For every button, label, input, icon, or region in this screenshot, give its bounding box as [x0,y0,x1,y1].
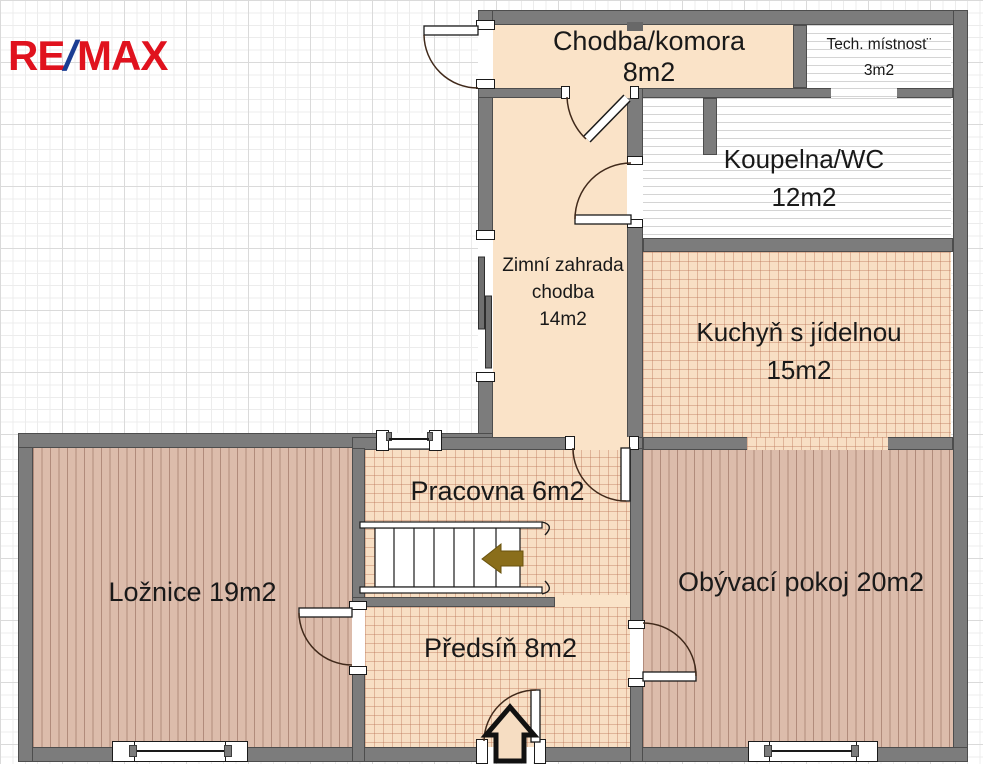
room-area: 15m2 [643,351,955,389]
window-cap [856,741,878,762]
room-area: 12m2 [643,178,965,216]
door-opening-zahrada-koupelna [627,163,643,221]
window-cap [476,230,495,240]
door-cap [629,436,639,450]
window-hinge [224,745,232,757]
room-name: Zimní zahrada [493,252,633,279]
door-opening-predsin-loznice [352,605,365,667]
wall-top [478,10,968,25]
window-hinge [851,745,859,757]
room-predsin [365,607,630,747]
door-opening-zahrada-pracovna [574,437,630,450]
room-area: 14m2 [493,306,633,333]
window-glass-line [137,750,224,752]
window-hinge [129,745,137,757]
room-name: Chodba/komora [493,26,805,57]
room-name-2: chodba [493,279,633,306]
door-cap [349,666,367,675]
floor-plan: Chodba/komora 8m2 Tech. místnost¨ 3m2 Ko… [0,0,983,764]
entrance-jamb [534,739,546,764]
wall-predsin-right [630,448,643,762]
room-name: Kuchyň s jídelnou [643,313,955,351]
logo-re: RE [8,32,64,79]
entrance-jamb [476,739,488,764]
remax-logo: RE/MAX [8,32,167,80]
passage-kuchyn-obyvaci [747,437,888,450]
label-chodba-komora: Chodba/komora 8m2 [493,26,805,88]
room-pracovna [365,448,630,597]
door-cap [627,156,643,165]
label-kuchyn: Kuchyň s jídelnou 15m2 [643,313,955,389]
room-obyvaci-pokoj [643,450,953,747]
logo-max: MAX [77,32,167,79]
label-tech-mistnost: Tech. místnost¨ 3m2 [807,32,951,84]
door-cap [565,436,575,450]
window-hinge [764,745,772,757]
passage-pracovna-predsin [555,595,630,607]
door-cap [628,678,645,687]
window-glass-line [389,438,429,440]
wall-pracovna-predsin [352,597,555,607]
label-obyvaci: Obývací pokoj 20m2 [643,567,959,598]
wall-kuchyn-top [643,238,953,252]
label-pracovna: Pracovna 6m2 [365,476,630,507]
door-opening-chodba-exterior [478,25,493,83]
room-name: Tech. místnost¨ [807,32,951,58]
wall-right [953,10,968,762]
label-predsin: Předsíň 8m2 [365,633,636,664]
door-leaf [424,26,478,35]
door-opening-chodba-zahrada [565,88,638,98]
room-name: Koupelna/WC [643,140,965,178]
label-koupelna-wc: Koupelna/WC 12m2 [643,140,965,216]
label-zimni-zahrada: Zimní zahrada chodba 14m2 [493,252,633,333]
window-cap [476,372,495,382]
room-area: 3m2 [807,58,951,84]
door-cap [627,219,643,228]
door-opening-tech-koupelna [831,88,897,98]
window-opening-zahrada-left [478,235,493,378]
room-area: 8m2 [493,57,805,88]
window-glass-line [772,750,852,752]
wall-left-lower [18,433,33,762]
label-loznice: Ložnice 19m2 [33,577,352,608]
door-swing-arc [424,35,478,88]
door-cap [628,620,645,629]
